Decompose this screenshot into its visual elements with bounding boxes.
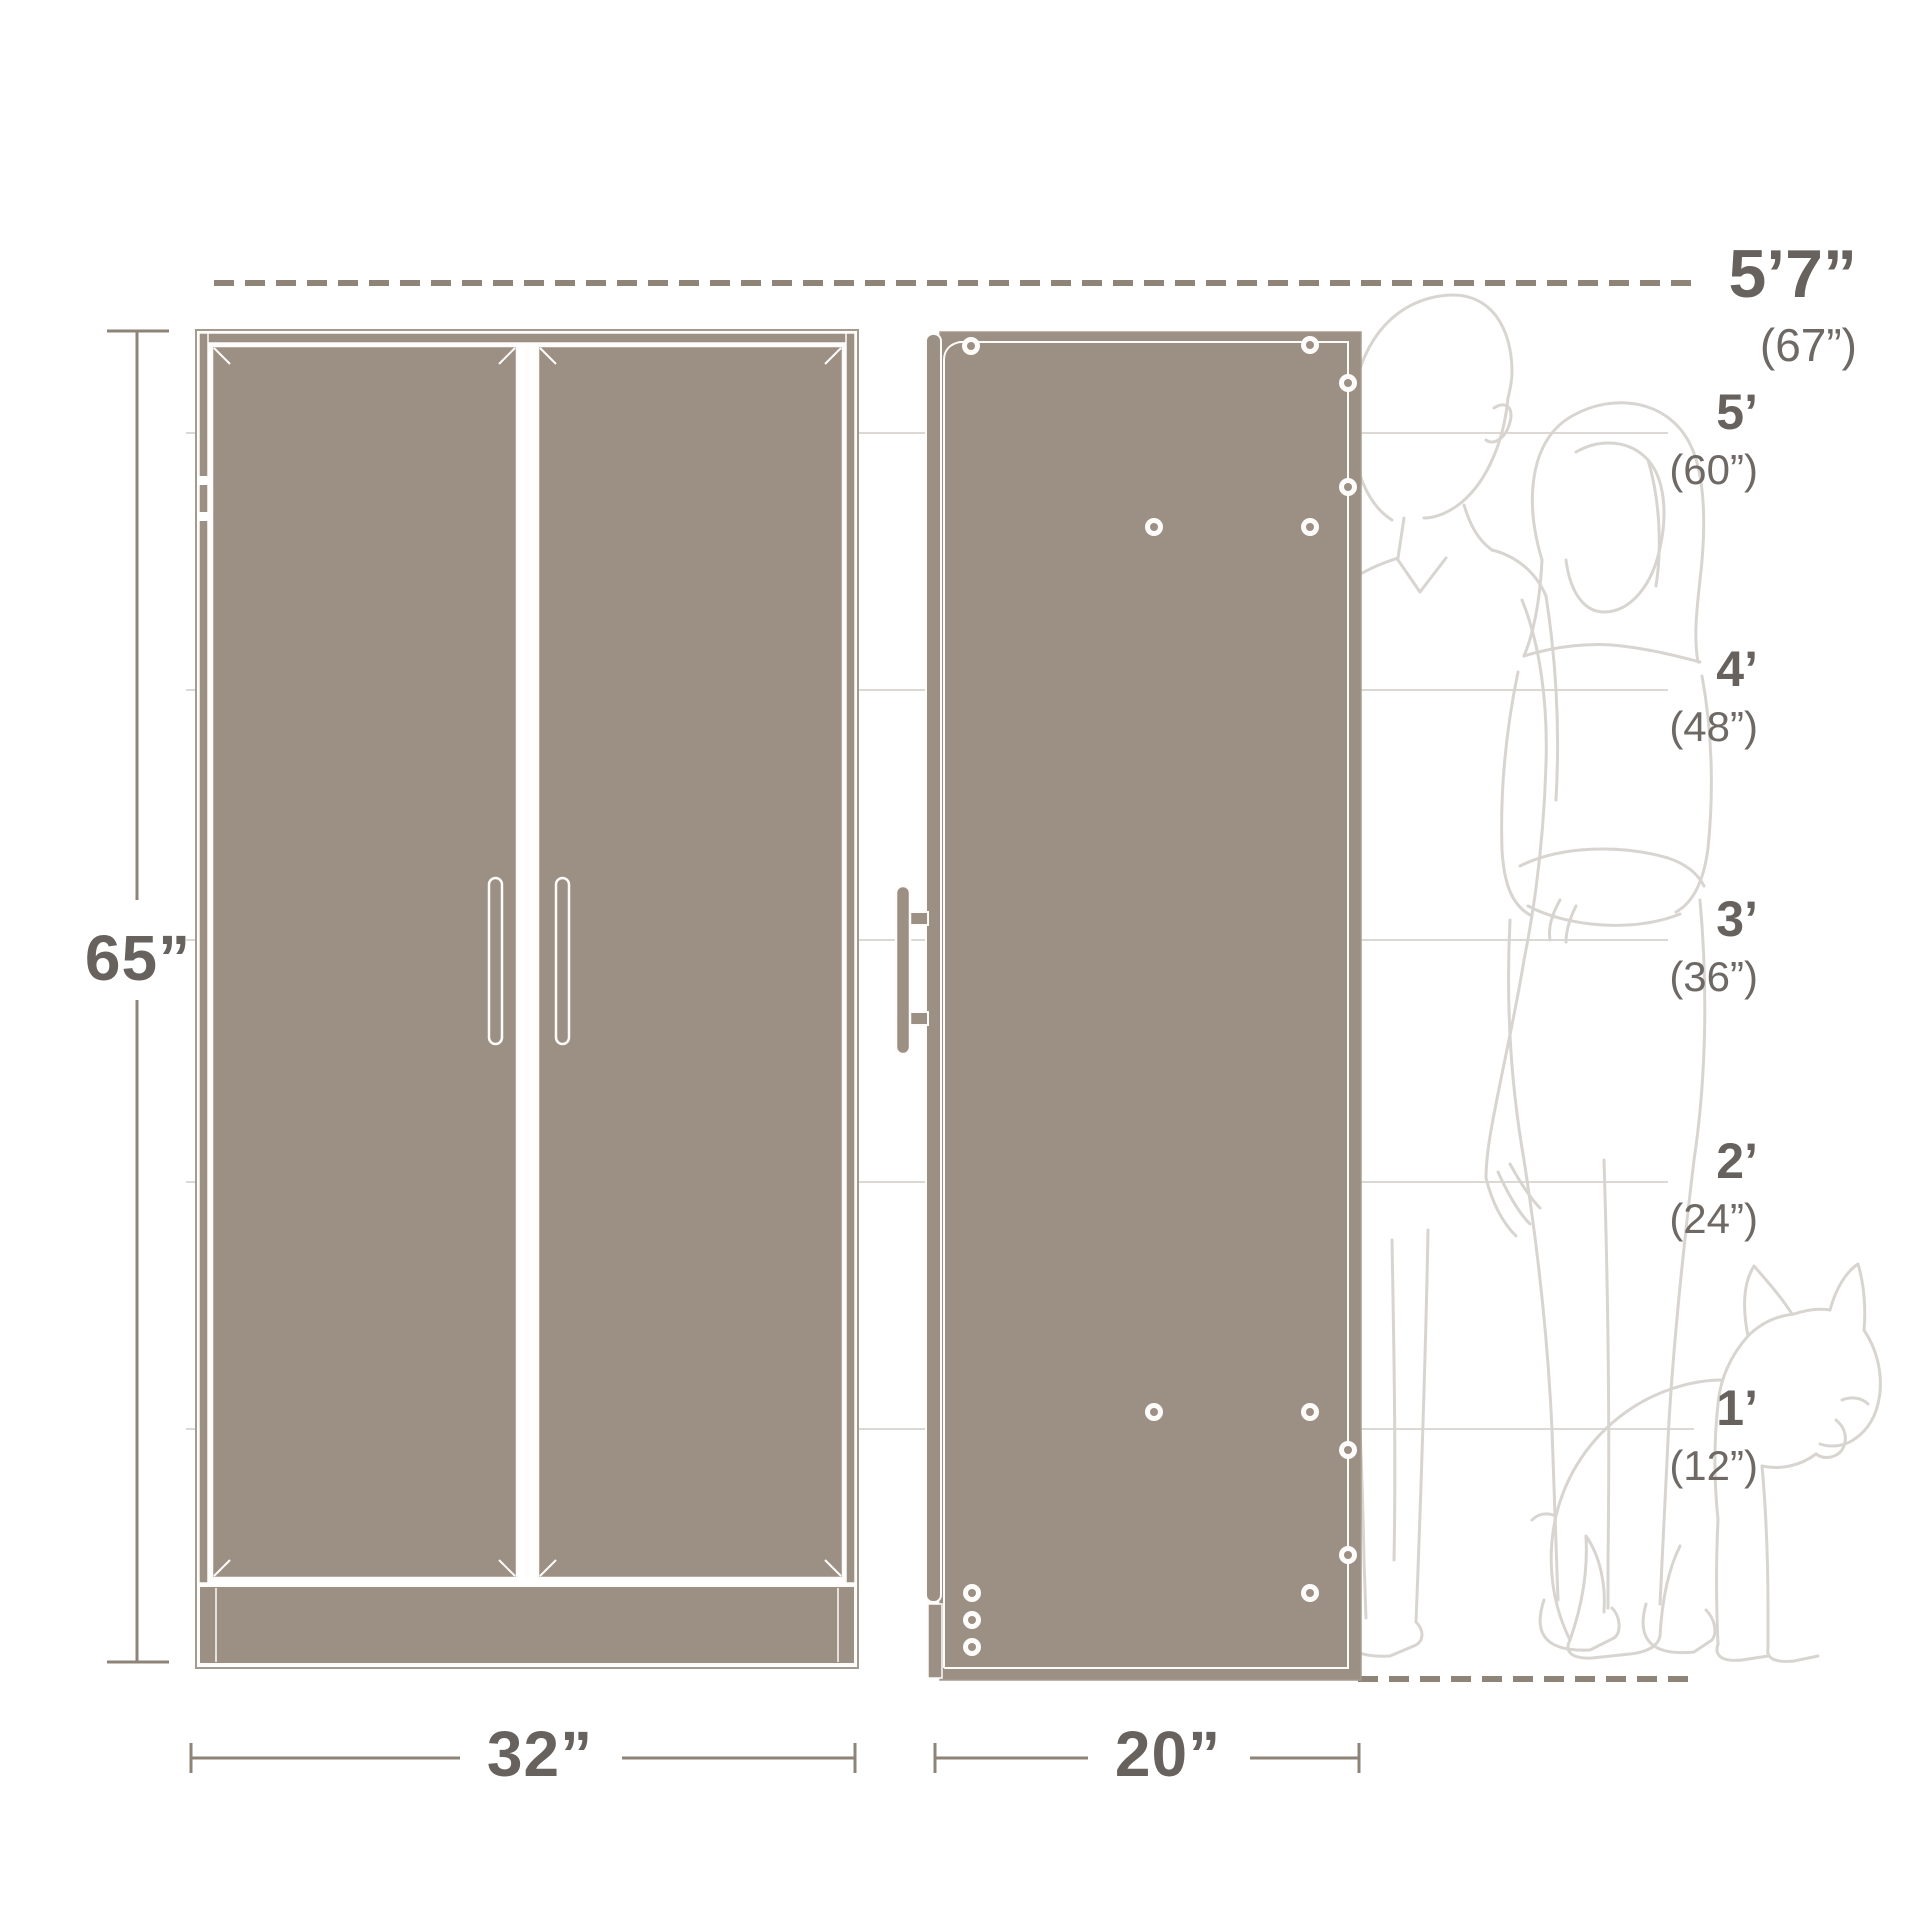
- scale-figures: [1308, 295, 1880, 1661]
- scale-inches-value: (24”): [1669, 1198, 1758, 1240]
- front-cabinet-base: [199, 1586, 855, 1664]
- front-cabinet-right-side-panel: [846, 333, 855, 1583]
- screw-hole-icon: [963, 1638, 981, 1656]
- front-cabinet-right-door: [538, 346, 843, 1578]
- screw-hole-icon: [1145, 1403, 1163, 1421]
- scale-inches-value: (60”): [1669, 449, 1758, 491]
- scale-inches-value: (12”): [1669, 1445, 1758, 1487]
- screw-hole-icon: [962, 337, 980, 355]
- diagram-graphics: [0, 0, 1920, 1920]
- screw-hole-icon: [1301, 1403, 1319, 1421]
- scale-label-1ft: 1’ (12”): [1669, 1383, 1758, 1487]
- scale-feet-value: 2’: [1669, 1136, 1758, 1186]
- screw-hole-icon: [1301, 1584, 1319, 1602]
- side-view-door-handle: [896, 886, 910, 1054]
- front-cabinet-left-door: [212, 346, 517, 1578]
- scale-label-2ft: 2’ (24”): [1669, 1136, 1758, 1240]
- scale-feet-value: 1’: [1669, 1383, 1758, 1433]
- side-cabinet-drawing: [896, 332, 1361, 1680]
- height-dimension-line: [107, 331, 169, 1662]
- scale-label-4ft: 4’ (48”): [1669, 644, 1758, 748]
- scale-inches-value: (36”): [1669, 956, 1758, 998]
- scale-feet-value: 5’: [1669, 387, 1758, 437]
- screw-hole-icon: [1339, 374, 1357, 392]
- hinge-gap: [197, 512, 210, 521]
- front-cabinet-drawing: [196, 330, 858, 1668]
- front-cabinet-top-frame: [199, 333, 855, 343]
- screw-hole-icon: [963, 1611, 981, 1629]
- scale-inches-value: (48”): [1669, 706, 1758, 748]
- front-width-dimension-label: 32”: [423, 1722, 657, 1786]
- side-cabinet-door-edge: [926, 334, 941, 1602]
- screw-hole-icon: [1339, 478, 1357, 496]
- cabinet-dimensions-diagram: 65” 32” 20” 5’7” (67”) 5’ (60”) 4’ (48”)…: [0, 0, 1920, 1920]
- screw-hole-icon: [1339, 1546, 1357, 1564]
- scale-feet-value: 3’: [1669, 894, 1758, 944]
- hinge-gap: [197, 476, 210, 485]
- scale-label-max-height: 5’7” (67”): [1728, 240, 1857, 368]
- scale-feet-value: 5’7”: [1728, 240, 1857, 308]
- screw-hole-icon: [1301, 336, 1319, 354]
- screw-hole-icon: [1339, 1441, 1357, 1459]
- side-depth-dimension-label: 20”: [1051, 1722, 1285, 1786]
- scale-label-5ft: 5’ (60”): [1669, 387, 1758, 491]
- scale-feet-value: 4’: [1669, 644, 1758, 694]
- scale-label-3ft: 3’ (36”): [1669, 894, 1758, 998]
- side-cabinet-base-edge: [928, 1604, 942, 1678]
- height-dimension-label: 65”: [40, 926, 236, 990]
- screw-hole-icon: [1301, 518, 1319, 536]
- screw-hole-icon: [1145, 518, 1163, 536]
- screw-hole-icon: [963, 1584, 981, 1602]
- scale-inches-value: (67”): [1728, 322, 1857, 368]
